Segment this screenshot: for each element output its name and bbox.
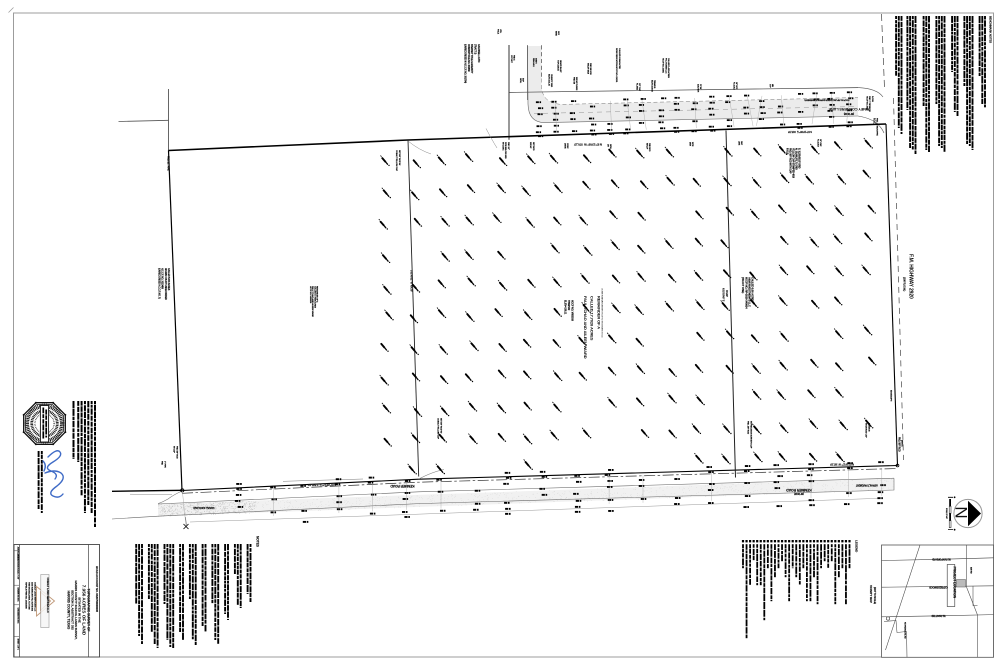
svg-text:ELEV=140.02: ELEV=140.02 — [650, 80, 653, 93]
svg-text:FND. 5/8” ROD WITH CAP: FND. 5/8” ROD WITH CAP — [789, 148, 792, 174]
svg-text:(60’ ROW): (60’ ROW) — [844, 112, 855, 115]
svg-text:KUYKENDAHL RD: KUYKENDAHL RD — [904, 622, 907, 639]
svg-text:PIPE BELOW GRD: PIPE BELOW GRD — [504, 142, 506, 159]
svg-text:(TRACT ONE): (TRACT ONE) — [741, 277, 745, 293]
svg-text:TBPELS FIRM NO. 10194586: TBPELS FIRM NO. 10194586 — [25, 582, 28, 609]
svg-text:HCAD ACCOUNT NO. 0420700000005: HCAD ACCOUNT NO. 0420700000005 — [95, 566, 99, 612]
svg-text:W. ROOT RD: W. ROOT RD — [931, 614, 945, 617]
svg-text:W/CAP: W/CAP — [529, 142, 532, 149]
svg-text:(60’ ROW): (60’ ROW) — [794, 492, 804, 494]
svg-text:S 87°26’17” E 2,845.43’: S 87°26’17” E 2,845.43’ — [308, 483, 337, 487]
svg-text:W. RAYFORD RD: W. RAYFORD RD — [932, 557, 951, 560]
svg-text:W/ PRECISION SURVEYS CAP: W/ PRECISION SURVEYS CAP — [750, 421, 753, 449]
svg-text:FND: FND — [160, 461, 162, 466]
svg-text:SET 5/8” ROD W/: SET 5/8” ROD W/ — [440, 418, 442, 434]
svg-text:ANCHOR: ANCHOR — [696, 84, 699, 93]
svg-text:WIRE: WIRE — [554, 31, 556, 37]
svg-text:SET ROD: SET ROD — [532, 142, 534, 151]
svg-text:W/CAP FL3832: W/CAP FL3832 — [575, 77, 578, 91]
svg-text:KEMMER ROAD: KEMMER ROAD — [786, 488, 812, 492]
svg-text:FND ROD: FND ROD — [648, 143, 650, 152]
svg-text:CALLED 17.7028 ACRES: CALLED 17.7028 ACRES — [590, 296, 595, 341]
svg-text:SHEET 1 OF 1: SHEET 1 OF 1 — [17, 639, 19, 650]
svg-text:CHECKED BY: BGC: CHECKED BY: BGC — [17, 608, 19, 625]
svg-text:FND 1” PIPE/ROD: FND 1” PIPE/ROD — [868, 96, 870, 112]
svg-text:HCCF NO. X881: HCCF NO. X881 — [865, 96, 867, 111]
svg-text:PCL HOMES LLC: PCL HOMES LLC — [664, 58, 666, 74]
svg-text:MAY RD: MAY RD — [970, 567, 973, 574]
svg-text:FND. 1/2” PIPE: FND. 1/2” PIPE — [167, 156, 169, 171]
svg-text:DRAWN BY: BGC: DRAWN BY: BGC — [17, 588, 20, 603]
svg-text:COBALT YELLOW CAP: COBALT YELLOW CAP — [437, 418, 440, 440]
svg-text:POLE: POLE — [496, 29, 498, 35]
svg-text:CUT SET: CUT SET — [510, 55, 512, 64]
svg-text:(100’ R.O.W.): (100’ R.O.W.) — [903, 277, 907, 291]
svg-text:PP W/: PP W/ — [699, 84, 701, 90]
svg-text:ASPHALT PAVEMENT: ASPHALT PAVEMENT — [855, 483, 878, 486]
svg-text:FL=135.8: FL=135.8 — [816, 139, 818, 148]
svg-text:W/ CONC: W/ CONC — [501, 142, 503, 151]
svg-text:TBM#101: TBM#101 — [653, 80, 655, 89]
svg-text:F.M. HIGHWAY 2920: F.M. HIGHWAY 2920 — [908, 254, 914, 299]
svg-text:CALDWELL AUTO: CALDWELL AUTO — [477, 44, 480, 63]
svg-text:WTR: WTR — [691, 142, 693, 147]
svg-text:1” PIPE: 1” PIPE — [164, 461, 166, 468]
svg-text:N 87°13’08” W 570.13’: N 87°13’08” W 570.13’ — [574, 142, 602, 146]
svg-text:1/2” CAP: 1/2” CAP — [638, 83, 641, 92]
svg-text:PROJECT LOCATION: PROJECT LOCATION — [952, 567, 956, 599]
svg-text:FND 5/8: FND 5/8 — [572, 77, 574, 85]
svg-text:CYPRESSWOOD: CYPRESSWOOD — [929, 586, 948, 589]
svg-text:CALLED 0.0644 ACRE: CALLED 0.0644 ACRE — [618, 48, 621, 69]
svg-text:GRAVEL SHOULDER: GRAVEL SHOULDER — [193, 506, 215, 509]
svg-text:W/CAP: W/CAP — [645, 143, 648, 150]
svg-text:HCCF NO. V853339: HCCF NO. V853339 — [309, 286, 311, 304]
svg-text:TOP=139.55: TOP=139.55 — [556, 60, 558, 72]
svg-text:CALLED 5.000 ACRES: CALLED 5.000 ACRES — [167, 268, 170, 291]
svg-text:404.99’: 404.99’ — [725, 290, 728, 297]
svg-text:(UNRECORDED IN H.C.C.F. NO. 20: (UNRECORDED IN H.C.C.F. NO. 201784) — [463, 44, 466, 83]
svg-text:DRIVE: DRIVE — [563, 143, 565, 149]
svg-text:CHRISTY GRD: CHRISTY GRD — [550, 74, 552, 88]
svg-text:FND 1/2”: FND 1/2” — [507, 142, 509, 150]
svg-text:EDGE/ASPH: EDGE/ASPH — [890, 390, 893, 402]
svg-text:W/ CAP: W/ CAP — [172, 446, 175, 454]
svg-text:COBALT LAND SERVICES LLC: COBALT LAND SERVICES LLC — [34, 582, 37, 612]
svg-text:R.O.W.: R.O.W. — [871, 96, 873, 103]
svg-text:THE WOODLANDS, TX 77380: THE WOODLANDS, TX 77380 — [28, 582, 31, 610]
svg-text:(NOT TO SCALE): (NOT TO SCALE) — [873, 587, 876, 604]
svg-text:FND 5/8 ROD: FND 5/8 ROD — [589, 63, 591, 75]
svg-text:(BENT): (BENT) — [901, 440, 903, 447]
svg-text:N: N — [951, 506, 970, 518]
svg-text:NOTES: NOTES — [256, 536, 260, 548]
svg-text:GRATE INLET: GRATE INLET — [559, 60, 562, 73]
svg-text:YELLOW CAP STAMPED 4819: YELLOW CAP STAMPED 4819 — [792, 148, 795, 179]
svg-text:FND 5/8” ROD: FND 5/8” ROD — [176, 446, 178, 459]
svg-text:SCALE 1”=60’: SCALE 1”=60’ — [945, 508, 948, 519]
svg-text:ROW DEDICATION HCCF NO. XX201: ROW DEDICATION HCCF NO. XX201 — [615, 48, 618, 83]
svg-text:CALLED 1.432 ACRES: CALLED 1.432 ACRES — [667, 58, 670, 79]
svg-text:SET 5/8” ROD W/: SET 5/8” ROD W/ — [398, 150, 400, 166]
svg-text:LEGEND: LEGEND — [855, 540, 859, 553]
svg-text:FND. 1" IRON PIPE: FND. 1" IRON PIPE — [876, 118, 878, 136]
svg-text:(TRACT 2): (TRACT 2) — [474, 44, 477, 55]
svg-text:S 87°13’08” E 845.78’: S 87°13’08” E 845.78’ — [788, 130, 812, 134]
svg-text:7.956 ACRES OF LAND: 7.956 ACRES OF LAND — [82, 585, 87, 636]
svg-text:HCCF NO. RP-2017-345678 (ASPHA: HCCF NO. RP-2017-345678 (ASPHALT PAVEMEN… — [804, 99, 849, 102]
svg-text:W/ 5/8 ROD CAP: W/ 5/8 ROD CAP — [864, 423, 867, 438]
svg-text:COMPANY FILE NO. 201889: COMPANY FILE NO. 201889 — [467, 44, 470, 72]
svg-text:15” CMP: 15” CMP — [819, 139, 821, 147]
svg-text:GRVL: GRVL — [519, 78, 521, 84]
svg-text:REMAINDER OF A: REMAINDER OF A — [597, 296, 602, 329]
svg-text:W/CAP 4819: W/CAP 4819 — [586, 63, 589, 75]
svg-text:ELEV=141.25: ELEV=141.25 — [547, 74, 550, 87]
svg-text:FND. 5/8” ROD: FND. 5/8” ROD — [898, 437, 900, 452]
svg-text:N 02°03’48” E: N 02°03’48” E — [722, 288, 725, 302]
svg-text:HCCF NO. Z4401: HCCF NO. Z4401 — [662, 58, 665, 74]
svg-text:FND. 5/8” ROD: FND. 5/8” ROD — [747, 421, 749, 435]
svg-text:RIM=140.1: RIM=140.1 — [532, 58, 535, 68]
svg-text:H.C.C.F. NO. X123456: H.C.C.F. NO. X123456 — [161, 268, 164, 290]
svg-text:ELEV=138.11: ELEV=138.11 — [564, 300, 567, 315]
svg-text:BENCHMARK NOTES: BENCHMARK NOTES — [989, 16, 993, 43]
svg-text:COBALT LAND SERVICES LLC: COBALT LAND SERVICES LLC — [46, 578, 50, 613]
svg-text:KEMMER ROAD: KEMMER ROAD — [390, 484, 415, 488]
svg-text:CONC: CONC — [566, 143, 568, 149]
svg-text:VICINITY MAP: VICINITY MAP — [869, 585, 873, 603]
svg-text:(UNRECORDED H.C.C.F. NO. 7): (UNRECORDED H.C.C.F. NO. 7) — [157, 268, 159, 299]
svg-text:COBALT YELLOW CAP: COBALT YELLOW CAP — [395, 150, 398, 172]
svg-text:S 02°46’52” W 404.76’: S 02°46’52” W 404.76’ — [410, 270, 413, 292]
svg-text:HARRIS COUNTY, TEXAS: HARRIS COUNTY, TEXAS — [67, 591, 71, 630]
svg-text:DATE: 12/30/2024 SCALE: 1”=60’: DATE: 12/30/2024 SCALE: 1”=60’ — [17, 554, 20, 580]
svg-text:STEWART TITLE GUARANTY: STEWART TITLE GUARANTY — [470, 44, 473, 74]
svg-text:18” RCP: 18” RCP — [735, 82, 737, 90]
svg-text:E: 3,125,432.87 GRID: E: 3,125,432.87 GRID — [798, 148, 801, 169]
svg-text:N: 13,886,371.71 GRID: N: 13,886,371.71 GRID — [795, 148, 797, 170]
svg-text:ADAMS COURT UNRECORDED: ADAMS COURT UNRECORDED — [164, 268, 167, 300]
svg-text:MTR: MTR — [688, 142, 690, 147]
svg-text:FL=136.2: FL=136.2 — [732, 82, 734, 91]
svg-text:FL.3832: FL.3832 — [635, 83, 637, 91]
svg-text:2219 SAWDUST RD, SUITE 803: 2219 SAWDUST RD, SUITE 803 — [31, 582, 34, 612]
